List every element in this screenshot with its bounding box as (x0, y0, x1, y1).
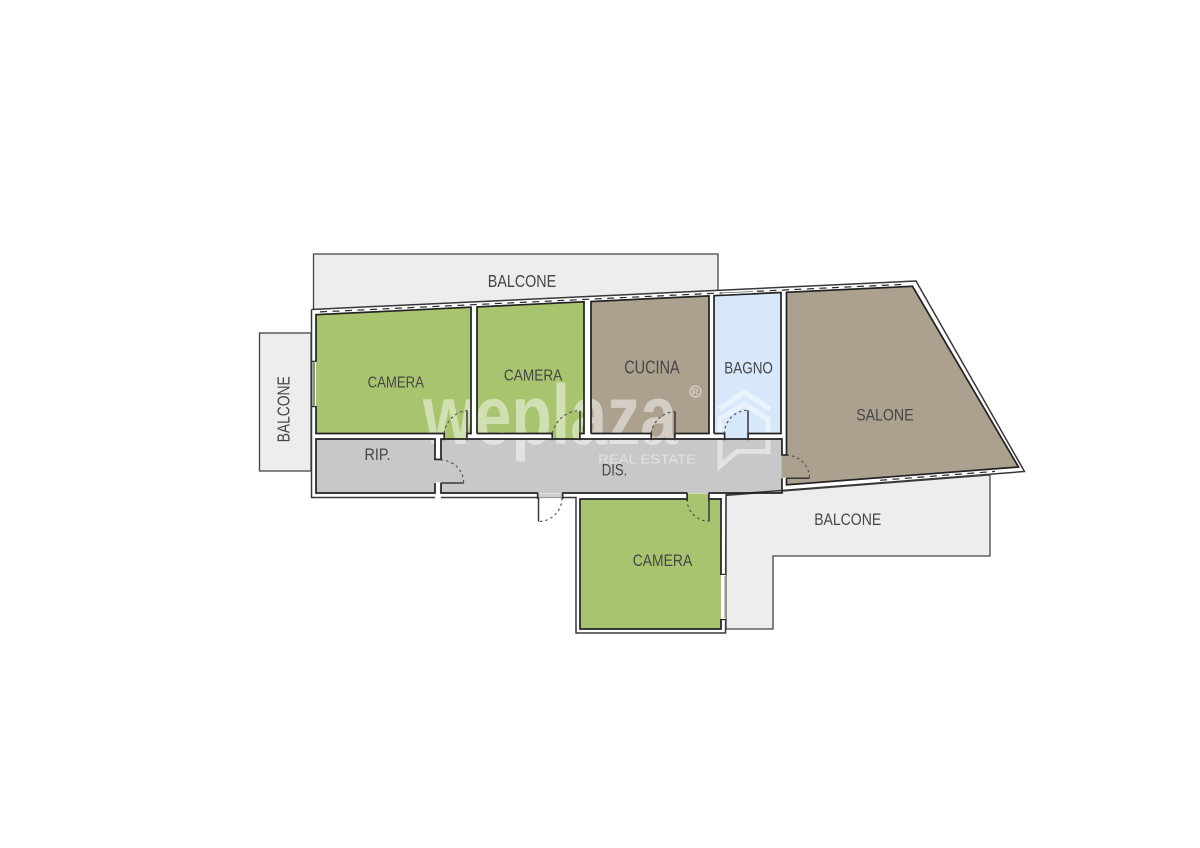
svg-text:BALCONE: BALCONE (274, 376, 294, 442)
svg-text:RIP.: RIP. (365, 445, 391, 464)
svg-text:CAMERA: CAMERA (368, 375, 425, 392)
svg-text:BAGNO: BAGNO (724, 358, 773, 377)
svg-text:R: R (692, 387, 699, 397)
svg-text:SALONE: SALONE (856, 406, 913, 425)
svg-text:BALCONE: BALCONE (814, 510, 881, 529)
svg-text:CAMERA: CAMERA (633, 551, 693, 570)
svg-text:DIS.: DIS. (602, 462, 628, 480)
svg-text:CUCINA: CUCINA (624, 358, 680, 378)
svg-text:BALCONE: BALCONE (488, 271, 556, 291)
svg-text:CAMERA: CAMERA (504, 368, 563, 385)
